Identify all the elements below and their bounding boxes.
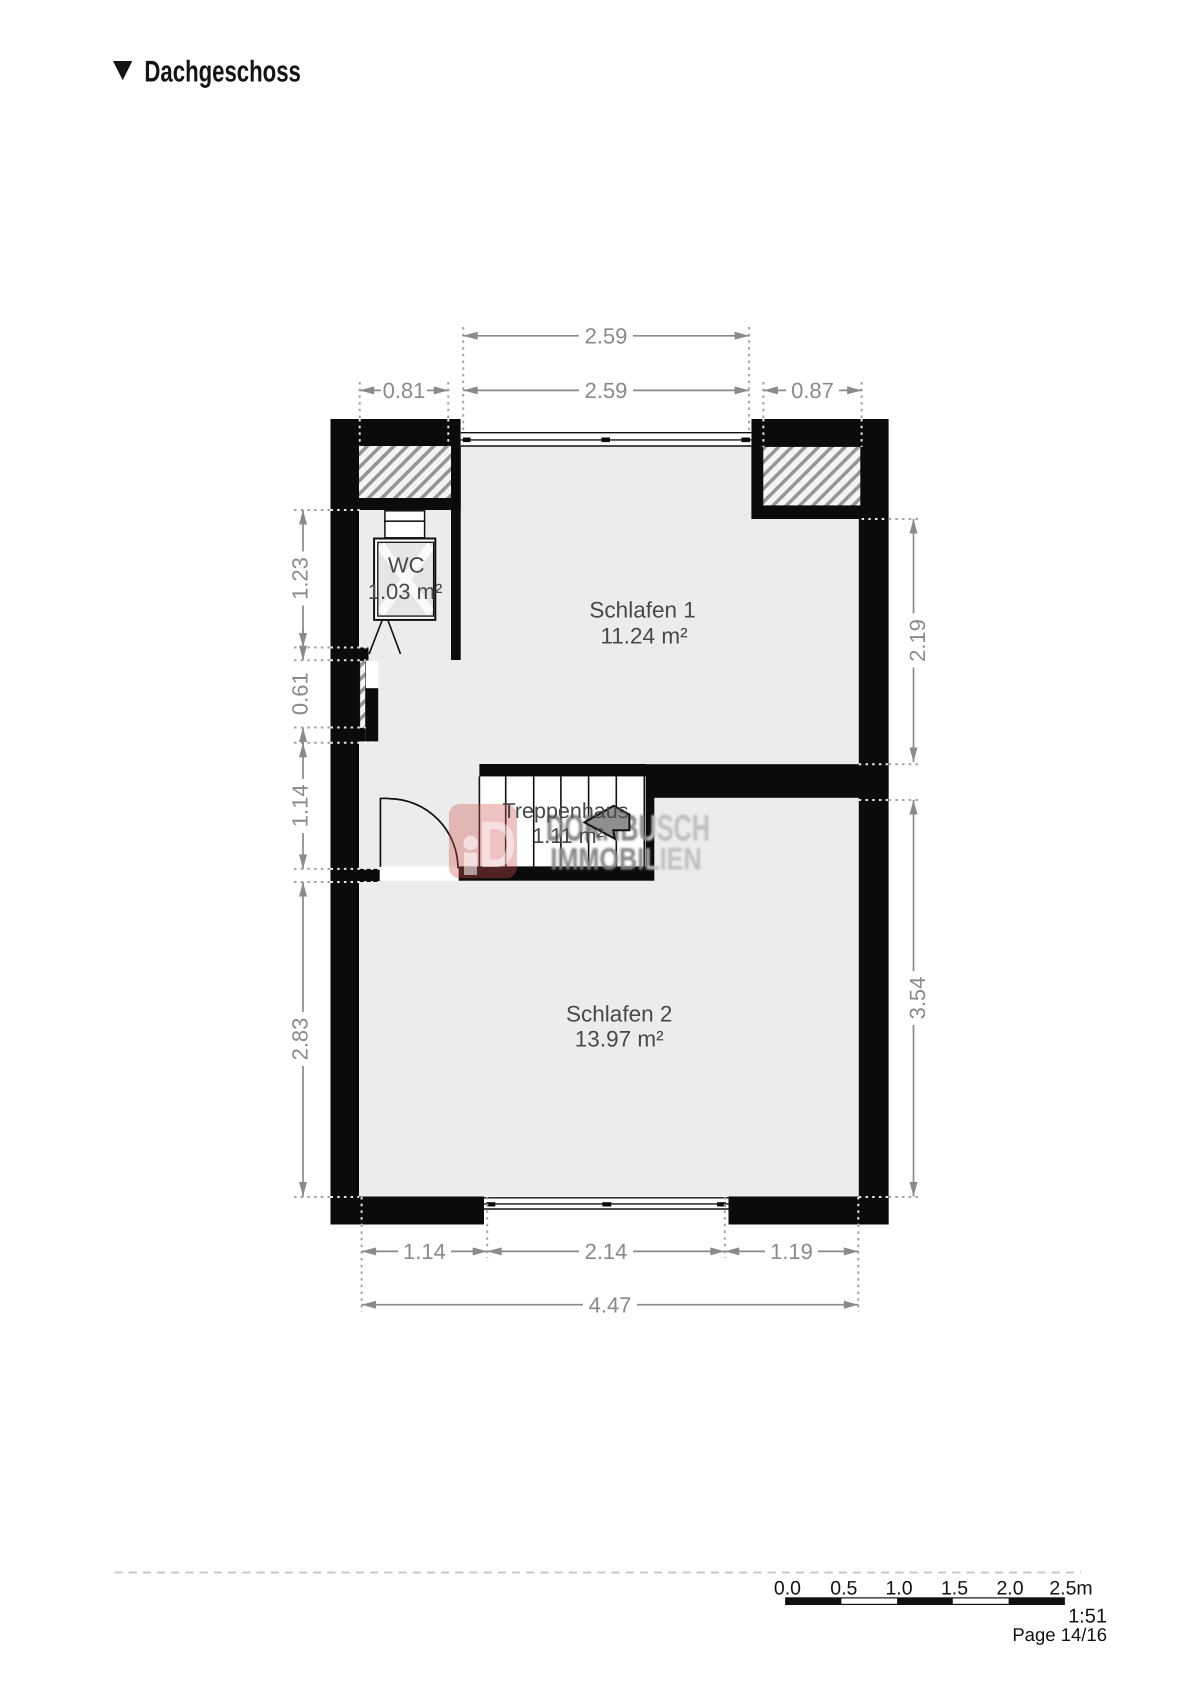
svg-text:1.23: 1.23 [287,557,312,600]
svg-text:1.14: 1.14 [403,1239,446,1264]
svg-text:Treppenhaus: Treppenhaus [503,799,629,823]
svg-text:Page 14/16: Page 14/16 [1012,1624,1107,1645]
svg-text:Dachgeschoss: Dachgeschoss [144,56,301,89]
svg-text:Schlafen 1: Schlafen 1 [589,598,695,623]
svg-text:2.5m: 2.5m [1049,1578,1092,1600]
svg-text:2.59: 2.59 [585,324,628,349]
svg-text:3.54: 3.54 [905,977,930,1020]
svg-text:0.0: 0.0 [774,1578,801,1600]
svg-text:13.97 m²: 13.97 m² [575,1027,664,1052]
svg-text:1.14: 1.14 [287,784,312,827]
svg-text:1.5: 1.5 [941,1578,968,1600]
svg-text:11.24 m²: 11.24 m² [600,623,688,648]
svg-text:1.03 m²: 1.03 m² [368,579,443,604]
svg-text:1.11 m²: 1.11 m² [532,824,603,848]
svg-text:0.81: 0.81 [383,378,426,403]
svg-text:4.47: 4.47 [589,1293,632,1318]
svg-text:2.14: 2.14 [585,1239,628,1264]
svg-text:2.83: 2.83 [287,1018,312,1061]
svg-text:1.19: 1.19 [770,1239,813,1264]
svg-text:2.19: 2.19 [905,619,930,662]
svg-text:2.0: 2.0 [996,1578,1023,1600]
svg-text:0.87: 0.87 [791,378,834,403]
svg-text:Schlafen 2: Schlafen 2 [566,1001,672,1026]
svg-text:1.0: 1.0 [885,1578,912,1600]
svg-text:0.5: 0.5 [830,1578,857,1600]
svg-text:2.59: 2.59 [585,378,628,403]
svg-text:0.61: 0.61 [287,672,312,715]
svg-text:WC: WC [388,552,425,577]
